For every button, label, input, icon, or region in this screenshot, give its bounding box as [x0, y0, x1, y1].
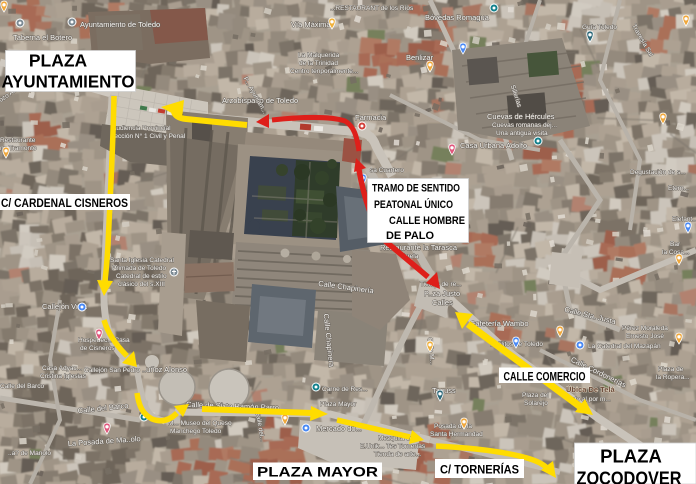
svg-text:Plaza Mayor: Plaza Mayor	[320, 401, 357, 408]
svg-text:Bóvedas Romagua: Bóvedas Romagua	[425, 13, 490, 22]
svg-text:PLAZA: PLAZA	[29, 51, 88, 71]
svg-text:Taberna el Botero: Taberna el Botero	[13, 33, 72, 42]
svg-text:Restaurante: Restaurante	[0, 137, 36, 144]
svg-text:Degustación de s...: Degustación de s...	[630, 169, 686, 176]
svg-text:Taguss: Taguss	[432, 386, 456, 395]
svg-text:Solarejo: Solarejo	[524, 400, 548, 407]
svg-text:M... Museo del Queso: M... Museo del Queso	[168, 420, 232, 427]
svg-text:Callejón San Pedro: Callejón San Pedro	[84, 367, 140, 374]
svg-text:La Catedral del Mazapán: La Catedral del Mazapán	[588, 343, 661, 350]
svg-text:PEATONAL ÚNICO: PEATONAL ÚNICO	[374, 198, 453, 211]
svg-text:Audiencia Provincial: Audiencia Provincial	[112, 125, 171, 132]
svg-text:la Cosa...: la Cosa...	[662, 249, 690, 256]
svg-text:ZOCODOVER: ZOCODOVER	[577, 468, 682, 484]
svg-text:clásico del s.XIII: clásico del s.XIII	[118, 281, 165, 288]
svg-text:Úbica De Telá: Úbica De Telá	[566, 385, 615, 394]
svg-text:CALLE COMERCIO: CALLE COMERCIO	[504, 371, 586, 383]
svg-text:Hospedec... Casa: Hospedec... Casa	[78, 337, 130, 344]
svg-text:Primada de Toledo: Primada de Toledo	[112, 265, 166, 272]
svg-text:Una antigua visita: Una antigua visita	[496, 130, 548, 137]
svg-text:Plaza del: Plaza del	[522, 392, 549, 399]
svg-text:DE PALO: DE PALO	[386, 230, 434, 242]
svg-text:Farmacia: Farmacia	[355, 113, 387, 122]
svg-text:Tienda de re...: Tienda de re...	[420, 281, 462, 288]
svg-text:Ernesto José: Ernesto José	[626, 333, 664, 340]
svg-text:P..za Justo: P..za Justo	[424, 289, 460, 298]
svg-text:Manchego Toledo: Manchego Toledo	[170, 428, 222, 435]
svg-text:Tienda de arte...: Tienda de arte...	[374, 451, 421, 458]
svg-text:C/ CARDENAL CISNEROS: C/ CARDENAL CISNEROS	[1, 196, 128, 210]
svg-text:Plaza de: Plaza de	[658, 366, 684, 373]
svg-text:Calles: Calles	[432, 298, 453, 307]
svg-text:Sección N° 1 Civil y Penal: Sección N° 1 Civil y Penal	[110, 132, 186, 140]
svg-text:TRAMO DE SENTIDO: TRAMO DE SENTIDO	[372, 183, 460, 195]
svg-text:Cristina Iglesias: Cristina Iglesias	[40, 373, 87, 380]
svg-text:C/ TORNERÍAS: C/ TORNERÍAS	[440, 464, 519, 477]
svg-text:Etern...: Etern...	[668, 185, 689, 192]
svg-text:AYUNTAMIENTO: AYUNTAMIENTO	[2, 72, 135, 92]
svg-text:Vía Máxima: Vía Máxima	[291, 20, 331, 29]
svg-text:Guía Toledo: Guía Toledo	[582, 24, 617, 31]
svg-text:Cuevas romanas dej...: Cuevas romanas dej...	[492, 122, 557, 129]
svg-text:Casa Urbana Adolfo: Casa Urbana Adolfo	[460, 141, 527, 150]
svg-text:Catedral de estilo: Catedral de estilo	[116, 273, 167, 280]
svg-text:Santa Iglesia Catedral: Santa Iglesia Catedral	[110, 257, 175, 264]
svg-text:la Ropera...: la Ropera...	[656, 374, 690, 381]
svg-text:Ayuntamiento de Toledo: Ayuntamiento de Toledo	[80, 20, 160, 29]
svg-text:Pérez Moraleda: Pérez Moraleda	[622, 325, 668, 332]
svg-text:Santa Hermandad: Santa Hermandad	[430, 431, 483, 438]
svg-text:de la Trinidad: de la Trinidad	[299, 60, 338, 67]
svg-text:Carne de Res...: Carne de Res...	[322, 386, 368, 393]
svg-text:PLAZA MAYOR: PLAZA MAYOR	[257, 464, 378, 480]
svg-text:CALLE HOMBRE: CALLE HOMBRE	[389, 215, 465, 227]
svg-text:Cuevas de Hércules: Cuevas de Hércules	[487, 112, 555, 121]
svg-text:Casa Adyac...: Casa Adyac...	[42, 365, 82, 372]
svg-text:E.Unik... Tes Tornerías: E.Unik... Tes Tornerías	[360, 443, 426, 450]
svg-text:..uñoz Alonso: ..uñoz Alonso	[142, 365, 187, 374]
svg-text:..a? de Manolo: ..a? de Manolo	[8, 450, 51, 457]
svg-text:PLAZA: PLAZA	[600, 446, 662, 467]
svg-text:...RESTAURANT de los Ríos: ...RESTAURANT de los Ríos	[330, 5, 414, 12]
svg-text:Bar: Bar	[670, 241, 681, 248]
svg-text:Centro tenporalmente...: Centro tenporalmente...	[290, 68, 358, 75]
svg-text:La Malquerida: La Malquerida	[298, 52, 340, 59]
svg-text:Elefant...: Elefant...	[672, 216, 696, 223]
svg-text:de Cisneros: de Cisneros	[80, 345, 115, 352]
svg-text:Cafetería Wambo: Cafetería Wambo	[470, 319, 529, 328]
svg-text:sa Cuartero: sa Cuartero	[370, 167, 404, 174]
svg-text:Calle del Barco: Calle del Barco	[0, 383, 44, 390]
